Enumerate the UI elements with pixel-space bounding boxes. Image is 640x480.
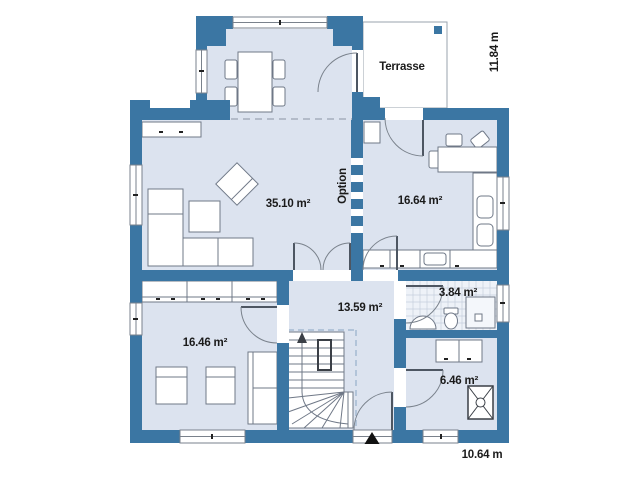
- dining-chair: [273, 87, 285, 106]
- window-living-left: [130, 165, 142, 225]
- dining-chair: [225, 60, 237, 79]
- dimension-vertical: 11.84 m: [489, 32, 501, 72]
- sideboard: [142, 122, 201, 137]
- floor-plan: 35.10 m² 16.64 m² 13.59 m² 3.84 m² 16.46…: [0, 0, 640, 480]
- option-label: Option: [337, 168, 349, 204]
- utility-area-label: 6.46 m²: [440, 375, 479, 387]
- hall-area-label: 13.59 m²: [338, 302, 383, 314]
- window-bay-left: [196, 50, 207, 93]
- stove: [424, 253, 446, 265]
- window-utility-bottom: [423, 430, 458, 443]
- window-bay-top: [233, 17, 327, 28]
- desk: [438, 147, 497, 172]
- terrace-post: [434, 26, 442, 34]
- desk-chair: [446, 134, 462, 146]
- bedroom-area-label: 16.46 m²: [183, 337, 228, 349]
- dimension-horizontal: 10.64 m: [462, 449, 503, 461]
- window-kitchen-right: [497, 177, 509, 230]
- window-bedroom-bottom: [180, 430, 245, 443]
- bed: [156, 367, 187, 404]
- bed: [206, 367, 235, 404]
- heating-unit: [468, 386, 493, 419]
- coffee-table: [189, 201, 220, 232]
- sink-basin: [477, 196, 493, 218]
- kitchen-area-label: 16.64 m²: [398, 195, 443, 207]
- living-area-label: 35.10 m²: [266, 198, 311, 210]
- shower-drain: [475, 314, 482, 321]
- kitchen-cabinet: [364, 122, 380, 143]
- dining-chair: [273, 60, 285, 79]
- bathroom-area-label: 3.84 m²: [439, 287, 478, 299]
- dining-table: [238, 52, 272, 112]
- window-bedroom-left: [130, 303, 142, 335]
- window-bathroom-right: [497, 285, 509, 322]
- wardrobe: [142, 281, 277, 302]
- toilet-icon: [445, 313, 458, 329]
- shower: [466, 297, 495, 328]
- sink-basin: [477, 224, 493, 246]
- floor-plan-drawing: 35.10 m² 16.64 m² 13.59 m² 3.84 m² 16.46…: [0, 0, 640, 480]
- terrace-label: Terrasse: [379, 61, 425, 73]
- option-wall: [351, 148, 363, 243]
